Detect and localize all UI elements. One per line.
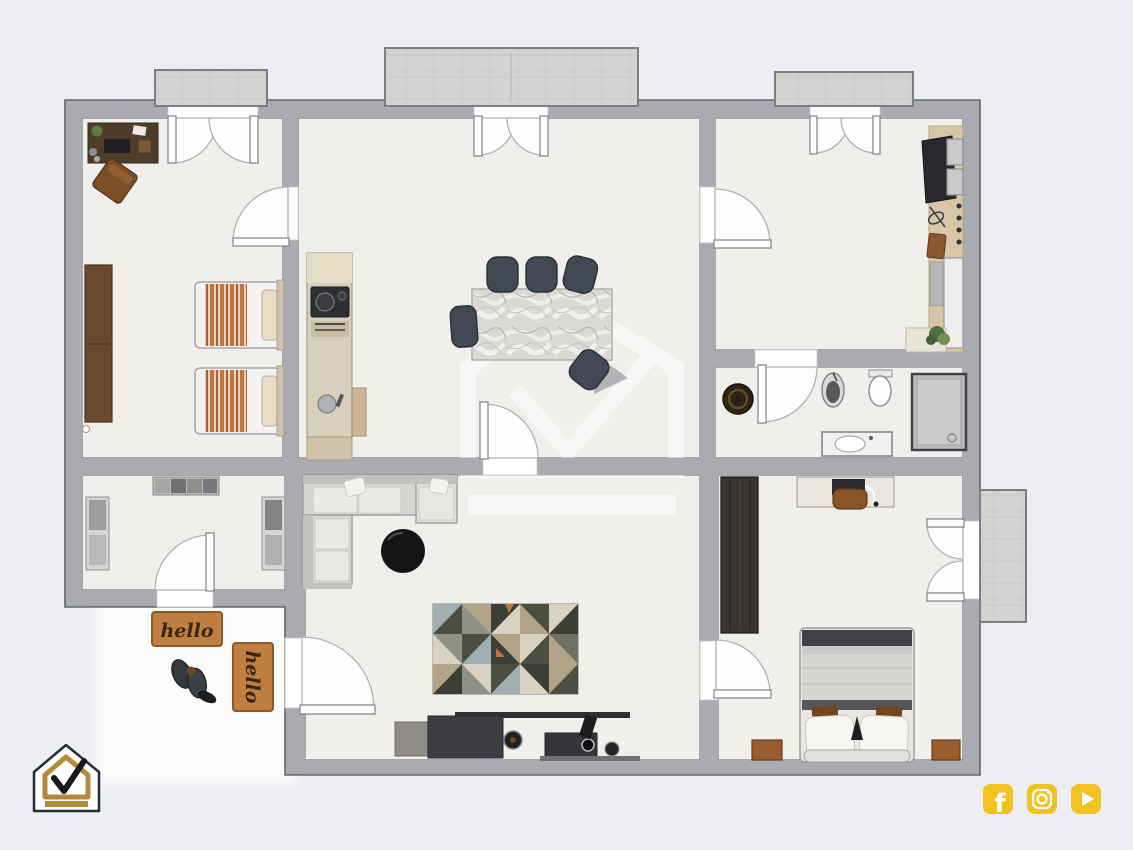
door-stop — [83, 426, 90, 433]
nightstand-right — [932, 740, 960, 760]
shower — [912, 374, 966, 450]
shelf-left — [86, 497, 109, 570]
instagram-icon[interactable] — [1027, 784, 1057, 814]
kitchen-sink — [318, 395, 336, 413]
doormat-text: hello — [241, 650, 263, 703]
balcony-master-bedroom — [980, 490, 1026, 622]
window-box-dressing-room — [775, 72, 913, 106]
coffee-table — [381, 529, 425, 573]
stool — [723, 384, 753, 414]
double-bed — [800, 628, 914, 762]
twin-bed-2 — [195, 366, 284, 436]
facebook-glyph: f — [994, 789, 1006, 819]
nightstand-left — [752, 740, 782, 760]
seat-pad — [930, 262, 943, 306]
twin-bed-1 — [195, 280, 284, 350]
balcony-kitchen — [385, 48, 638, 106]
rug — [433, 604, 578, 694]
social-icons: f — [983, 784, 1101, 819]
floor-plan-page: hello hello f — [0, 0, 1133, 850]
toilet — [869, 370, 892, 406]
desk-chair — [833, 489, 867, 509]
doormat-horizontal: hello — [152, 612, 222, 646]
bidet — [822, 373, 844, 407]
shelf-top — [153, 477, 219, 495]
doormat-vertical: hello — [233, 643, 273, 711]
shelf-right — [262, 497, 285, 570]
desk — [88, 123, 158, 163]
doormat-text: hello — [160, 620, 213, 642]
youtube-icon[interactable] — [1071, 784, 1101, 814]
wardrobe — [721, 477, 758, 633]
floor-plan-image: hello hello f — [0, 0, 1133, 850]
window-box-twin-bedroom — [155, 70, 267, 106]
wardrobe — [85, 265, 112, 422]
cutting-board — [927, 233, 946, 259]
vanity-sink — [822, 432, 892, 456]
